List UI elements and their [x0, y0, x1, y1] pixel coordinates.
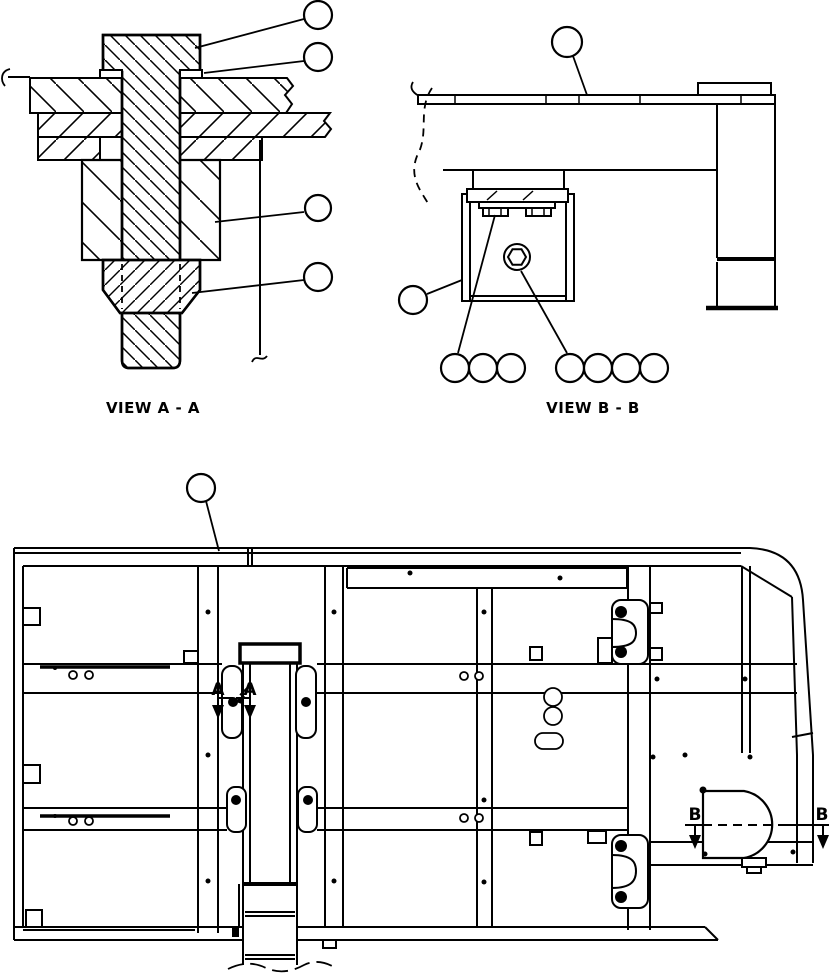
clamp-bolt [301, 697, 311, 707]
callout-balloon [552, 27, 582, 57]
callout-balloon [497, 354, 525, 382]
technical-drawing: VIEW A - A [0, 0, 829, 975]
view-a-a-label: VIEW A - A [106, 399, 200, 417]
wall-tab [23, 765, 40, 783]
clamp-bracket [298, 787, 317, 832]
washer [180, 70, 202, 78]
plan-view-frame: A A B B [14, 474, 829, 971]
clamp-bolt [231, 795, 241, 805]
callout-balloon [304, 263, 332, 291]
callout-balloon [640, 354, 668, 382]
bottom-band [14, 927, 718, 940]
lower-plate [38, 113, 122, 137]
crossmember [325, 566, 343, 927]
channel-lower-box [243, 884, 297, 965]
parts-diagram-page: VIEW A - A [0, 0, 829, 975]
callout-balloon [304, 1, 332, 29]
upper-plate [30, 78, 122, 113]
mount-bracket-assembly [462, 170, 574, 301]
view-b-b-section: VIEW B - B [399, 27, 778, 417]
break-line [252, 356, 267, 362]
section-letter-b: B [816, 805, 829, 825]
cap-plate [698, 83, 771, 95]
crossmember [742, 566, 750, 753]
bolt-head [483, 208, 508, 216]
callout-balloon [469, 354, 497, 382]
callout-balloon [305, 195, 331, 221]
spacer-right [180, 137, 262, 160]
clamp-bolt [303, 795, 313, 805]
side-wall-inner [792, 597, 797, 863]
section-letter-b: B [689, 805, 702, 825]
bolted-joint-cross-section [2, 35, 331, 368]
callout-balloon [304, 43, 332, 71]
callout-balloon [556, 354, 584, 382]
hole [544, 688, 562, 706]
callout-balloon [441, 354, 469, 382]
plan-callouts [187, 474, 219, 551]
callout-balloon [584, 354, 612, 382]
channel-cap [240, 644, 300, 663]
crossmember [198, 566, 218, 933]
bolt-head [526, 208, 551, 216]
callout-balloon [399, 286, 427, 314]
hole [544, 707, 562, 725]
crossmember [477, 588, 492, 927]
bracket-top-plate [467, 189, 568, 202]
spacer-left [38, 137, 100, 160]
clamp-bracket [227, 787, 246, 832]
section-arrow [817, 835, 829, 849]
view-b-b-label: VIEW B - B [546, 399, 640, 417]
slot-hole [535, 733, 563, 749]
callout-balloon [612, 354, 640, 382]
washer [100, 70, 122, 78]
view-a-a-section: VIEW A - A [2, 1, 332, 417]
wall-tab [26, 910, 42, 927]
break-line [414, 88, 432, 207]
bolt-dots [53, 571, 796, 885]
section-arrow [244, 705, 256, 719]
wall-tab [23, 608, 40, 625]
callout-balloon [187, 474, 215, 502]
front-sub-rail [347, 568, 627, 588]
